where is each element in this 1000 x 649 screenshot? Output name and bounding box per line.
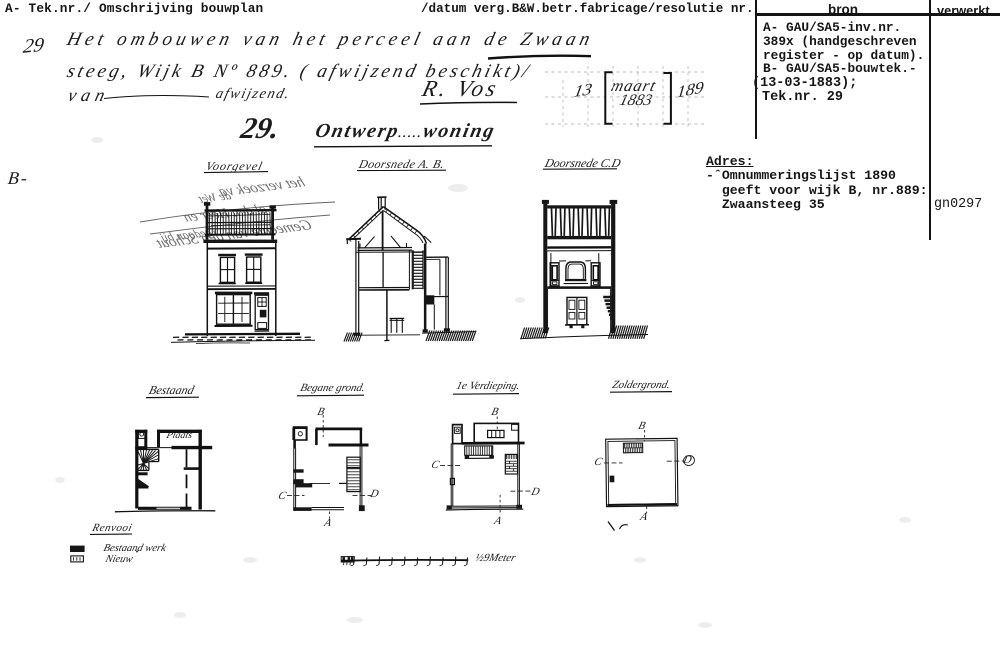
svg-text:de Wet: de Wet [195, 189, 233, 206]
